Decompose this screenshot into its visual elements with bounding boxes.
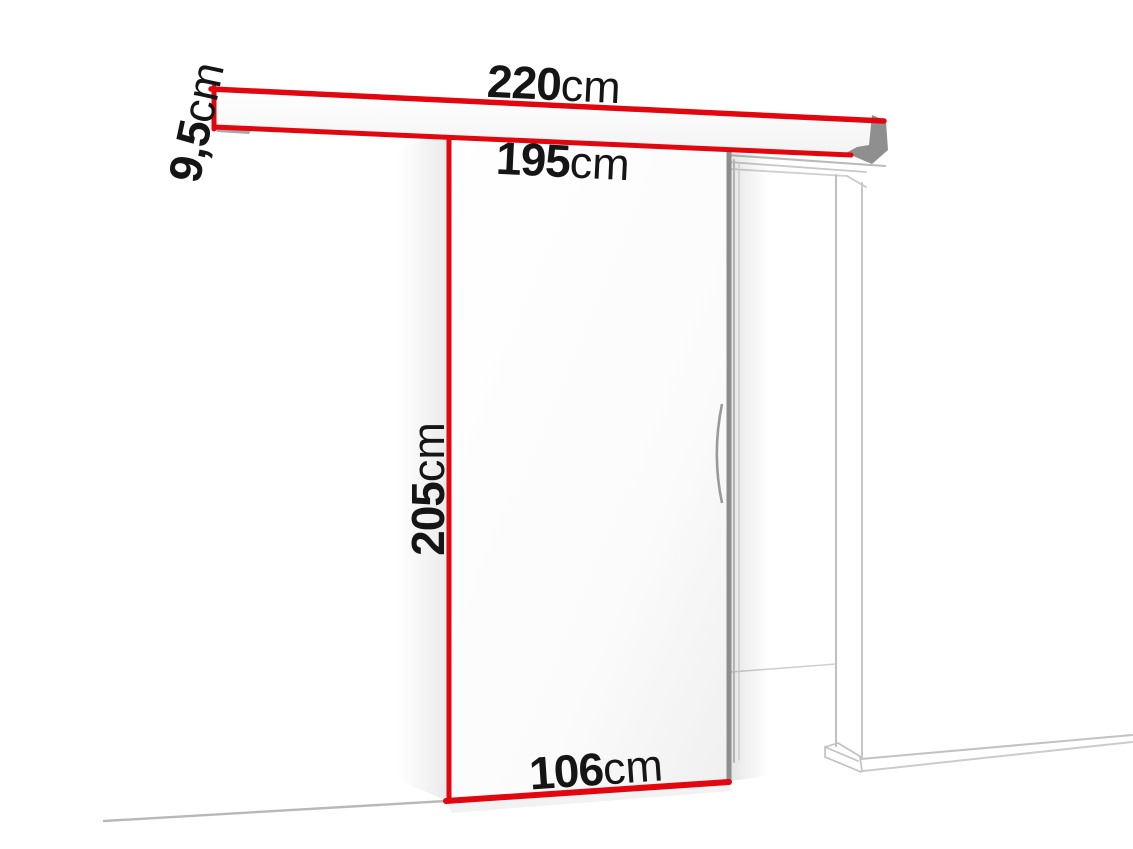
dim-rail-length-label: 220cm <box>486 58 622 110</box>
dim-track-length-value: 195 <box>495 132 571 188</box>
dim-door-width-unit: cm <box>601 739 664 794</box>
door-panel <box>446 132 729 803</box>
dim-rail-length-unit: cm <box>560 59 622 113</box>
dim-track-length-unit: cm <box>569 136 631 190</box>
dim-door-width-value: 106 <box>527 743 604 800</box>
floor-line-left <box>104 801 446 821</box>
door-right-shadow <box>731 152 768 781</box>
door-panel-face <box>447 132 729 803</box>
sliding-door-dimension-diagram: 220cm 195cm 9,5cm 205cm 106cm <box>0 0 1133 849</box>
frame-head-mitre <box>847 176 866 187</box>
dim-track-length-label: 195cm <box>495 135 631 187</box>
dim-door-width-label: 106cm <box>528 741 665 796</box>
dim-door-height-value: 205 <box>402 482 454 556</box>
frame-plinth <box>825 743 862 772</box>
dim-rail-length-value: 220 <box>486 55 562 111</box>
dim-door-height-unit: cm <box>403 422 454 482</box>
dim-door-height-label: 205cm <box>405 422 451 556</box>
